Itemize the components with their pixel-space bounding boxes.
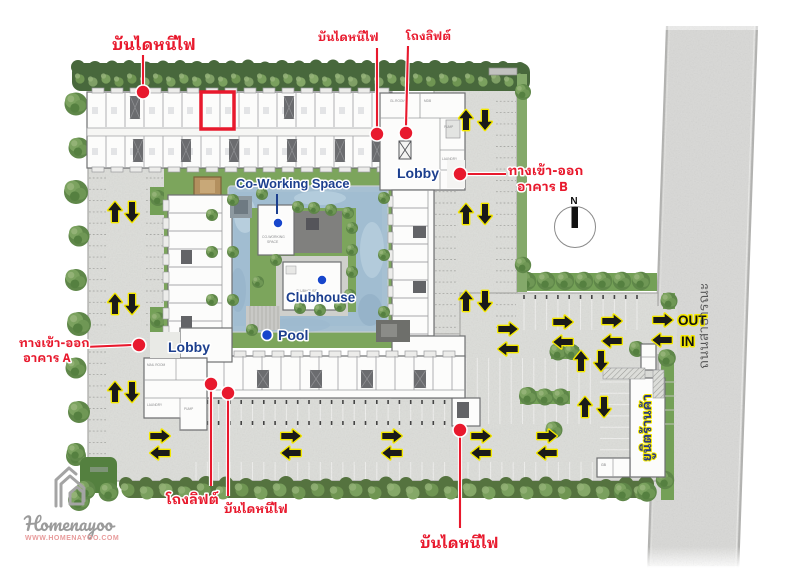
svg-text:GL.ROOM: GL.ROOM xyxy=(390,99,405,103)
svg-text:Lobby: Lobby xyxy=(397,165,439,181)
svg-text:N: N xyxy=(570,196,577,207)
svg-text:OUT: OUT xyxy=(678,313,707,328)
svg-text:CO-WORKING: CO-WORKING xyxy=(262,235,285,239)
svg-text:WWW.HOMENAYOO.COM: WWW.HOMENAYOO.COM xyxy=(25,535,119,542)
svg-text:MAIL ROOM: MAIL ROOM xyxy=(147,363,165,367)
svg-text:Co-Working Space: Co-Working Space xyxy=(236,176,350,191)
svg-text:MDB: MDB xyxy=(424,99,431,103)
svg-text:Clubhouse: Clubhouse xyxy=(286,290,355,305)
svg-text:Lobby: Lobby xyxy=(168,339,210,355)
svg-text:PUMP: PUMP xyxy=(444,125,453,129)
svg-text:IN: IN xyxy=(681,334,695,349)
svg-text:Pool: Pool xyxy=(278,327,308,343)
svg-text:LAUNDRY: LAUNDRY xyxy=(147,403,163,407)
svg-text:SPACE: SPACE xyxy=(267,240,279,244)
svg-text:GB: GB xyxy=(601,463,607,467)
svg-text:PUMP: PUMP xyxy=(184,407,193,411)
